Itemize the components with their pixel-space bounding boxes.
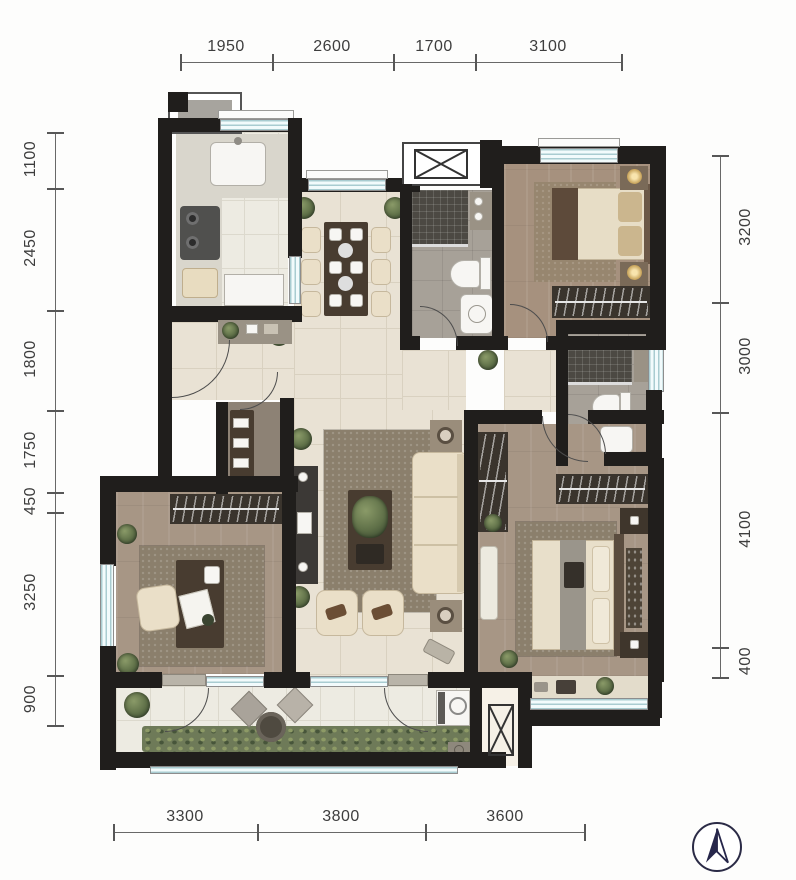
washer-panel — [438, 692, 445, 724]
dimension-tick — [47, 492, 64, 494]
console-decor — [264, 324, 278, 334]
shelf-item — [233, 458, 249, 468]
centerpiece-icon — [338, 243, 353, 258]
bay-decor-tray — [534, 682, 548, 692]
dimension-tick — [475, 54, 477, 71]
wall — [282, 488, 296, 686]
place-setting-icon — [329, 261, 342, 274]
dimension-tick — [272, 54, 274, 71]
window — [100, 564, 114, 648]
plant-icon — [124, 692, 150, 718]
dimension-tick — [712, 647, 729, 649]
dimension-label: 3200 — [737, 197, 755, 257]
dimension-label: 3250 — [22, 562, 40, 622]
pillow — [618, 226, 642, 256]
dimension-tick — [47, 512, 64, 514]
door-threshold — [162, 674, 206, 686]
dimension-label: 1100 — [22, 129, 40, 189]
wardrobe — [556, 474, 648, 504]
nightstand-decor — [630, 640, 639, 649]
dimension-tick — [393, 54, 395, 71]
bay-window — [530, 698, 648, 710]
dimension-label: 1950 — [191, 38, 261, 56]
wall — [264, 672, 310, 688]
wall — [104, 476, 298, 492]
dimension-tick — [47, 310, 64, 312]
bay-decor-books — [556, 680, 576, 694]
dimension-tick — [621, 54, 623, 71]
dimension-tick — [47, 132, 64, 134]
plant-icon — [484, 514, 502, 532]
lamp-icon — [437, 607, 454, 624]
wall — [168, 92, 188, 112]
dimension-tick — [180, 54, 182, 71]
dimension-label: 3600 — [470, 808, 540, 826]
dimension-tick — [584, 824, 586, 841]
dimension-line — [180, 62, 622, 63]
hallway-floor — [402, 350, 466, 410]
window — [540, 148, 618, 163]
dimension-label: 3800 — [306, 808, 376, 826]
dimension-label: 1800 — [22, 329, 40, 389]
pillow — [592, 546, 610, 592]
dining-chair — [371, 227, 391, 253]
place-setting-icon — [329, 228, 342, 241]
bed-blanket — [552, 188, 578, 260]
plant-icon — [222, 322, 239, 339]
dimension-tick — [712, 412, 729, 414]
wall — [470, 684, 482, 768]
dimension-tick — [425, 824, 427, 841]
wall — [456, 336, 508, 350]
dimension-tick — [712, 302, 729, 304]
plant-icon — [352, 496, 388, 538]
plant-icon — [478, 350, 498, 370]
dimension-tick — [712, 677, 729, 679]
pillow — [618, 192, 642, 222]
window — [206, 676, 264, 687]
window — [648, 346, 664, 392]
bed-tray — [564, 562, 584, 588]
wall — [556, 320, 650, 334]
wardrobe — [170, 494, 282, 524]
plant-icon — [117, 524, 137, 544]
wall — [400, 336, 420, 350]
shower-glass — [412, 244, 468, 247]
bed-runner — [560, 540, 586, 650]
dimension-label: 2600 — [297, 38, 367, 56]
sofa-cushion-seam — [414, 496, 458, 498]
console-decor — [246, 324, 258, 334]
pillow — [592, 598, 610, 644]
dimension-line — [113, 832, 585, 833]
speaker-icon — [298, 472, 308, 482]
dimension-tick — [257, 824, 259, 841]
lamp-icon — [627, 265, 642, 280]
sofa-cushion-seam — [414, 544, 458, 546]
place-setting-icon — [350, 294, 363, 307]
wall — [588, 410, 664, 424]
toilet — [450, 260, 480, 288]
dimension-line — [720, 155, 721, 677]
washer-drum-icon — [449, 697, 467, 715]
toiletry-icon — [474, 197, 483, 206]
dimension-label: 900 — [22, 669, 40, 729]
dimension-tick — [47, 675, 64, 677]
plant-icon — [596, 677, 614, 695]
desk-lamp-icon — [204, 566, 220, 584]
dimension-label: 400 — [737, 631, 755, 691]
dimension-line — [55, 132, 56, 725]
window — [150, 766, 458, 774]
dining-chair — [301, 259, 321, 285]
shelf-item — [233, 438, 249, 448]
bedroom-bench — [626, 548, 642, 628]
desk-plant-icon — [202, 614, 214, 626]
desk-chair — [135, 583, 181, 632]
place-setting-icon — [329, 294, 342, 307]
dimension-label: 3100 — [513, 38, 583, 56]
shaft-x-icon — [414, 149, 468, 179]
place-setting-icon — [350, 228, 363, 241]
dining-chair — [371, 291, 391, 317]
dining-chair — [371, 259, 391, 285]
nightstand-decor — [630, 516, 639, 525]
chaise-bench — [480, 546, 498, 620]
wall — [400, 184, 412, 348]
tray — [356, 544, 384, 564]
shaft-x-icon — [488, 704, 514, 756]
burner-icon — [186, 236, 199, 249]
wall — [604, 452, 650, 466]
wall — [464, 410, 478, 684]
wall — [100, 476, 116, 566]
sink-basin-icon — [468, 305, 486, 323]
cutting-board — [182, 268, 218, 298]
lamp-icon — [627, 169, 642, 184]
dimension-tick — [47, 725, 64, 727]
toilet-tank — [480, 257, 491, 290]
lamp-icon — [437, 427, 454, 444]
dimension-tick — [113, 824, 115, 841]
speaker-icon — [298, 562, 308, 572]
wall — [492, 162, 504, 348]
shower-glass — [568, 382, 632, 385]
dimension-label: 450 — [22, 471, 40, 531]
tv-equipment — [297, 512, 312, 534]
dining-chair — [301, 227, 321, 253]
shelf-item — [233, 418, 249, 428]
hallway-floor-2 — [504, 350, 556, 412]
wardrobe — [552, 286, 650, 318]
dining-chair — [301, 291, 321, 317]
dimension-label: 4100 — [737, 499, 755, 559]
burner-icon — [186, 212, 199, 225]
wall — [524, 710, 660, 726]
floor-plan-page: 1950 2600 1700 3100 1100 2450 1800 1750 … — [0, 0, 796, 880]
dimension-label: 3000 — [737, 326, 755, 386]
window-sill — [538, 138, 620, 147]
plant-icon — [500, 650, 518, 668]
place-setting-icon — [350, 261, 363, 274]
balcony-table — [256, 712, 286, 742]
kitchen-sink — [210, 142, 266, 186]
dimension-tick — [47, 188, 64, 190]
wall — [648, 458, 664, 682]
wall — [158, 118, 172, 484]
dimension-tick — [47, 410, 64, 412]
window — [220, 119, 292, 131]
dimension-label: 3300 — [150, 808, 220, 826]
dimension-label: 2450 — [22, 218, 40, 278]
window-sill — [306, 170, 388, 179]
window — [308, 179, 386, 191]
kitchen-cabinet — [224, 274, 284, 306]
dimension-label: 1700 — [399, 38, 469, 56]
north-arrow-icon — [692, 822, 742, 872]
wall — [650, 146, 666, 346]
centerpiece-icon — [338, 276, 353, 291]
shower-area — [412, 190, 468, 244]
faucet-icon — [234, 137, 242, 145]
door-threshold — [388, 674, 428, 686]
window-sill — [218, 110, 294, 119]
dimension-tick — [712, 155, 729, 157]
window — [310, 676, 388, 687]
toiletry-icon — [474, 212, 483, 221]
sliding-door — [289, 256, 301, 304]
